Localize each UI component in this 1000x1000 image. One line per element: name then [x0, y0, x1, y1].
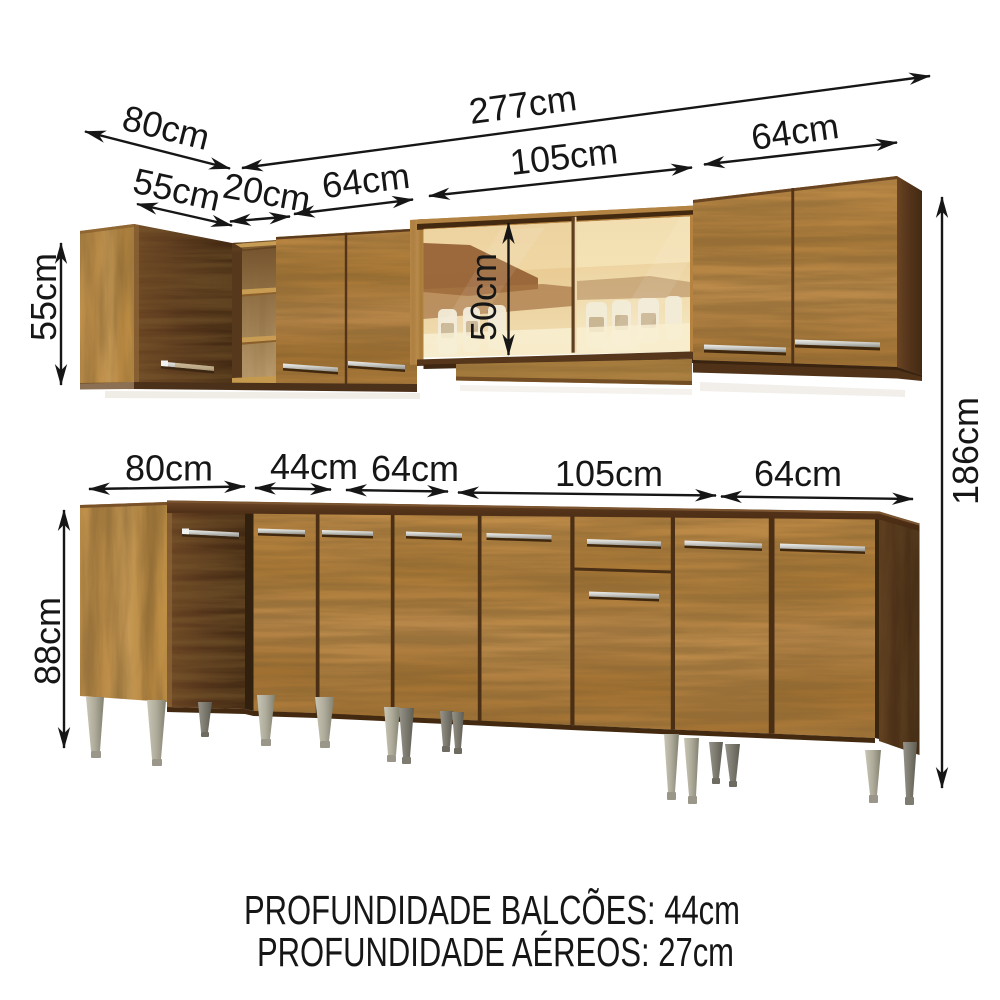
- svg-text:277cm: 277cm: [467, 77, 580, 132]
- svg-text:PROFUNDIDADE AÉREOS: 27cm: PROFUNDIDADE AÉREOS: 27cm: [257, 929, 734, 975]
- svg-text:88cm: 88cm: [27, 597, 68, 685]
- svg-text:PROFUNDIDADE BALCÕES: 44cm: PROFUNDIDADE BALCÕES: 44cm: [244, 887, 740, 933]
- svg-text:55cm: 55cm: [23, 253, 64, 341]
- svg-text:55cm: 55cm: [129, 160, 224, 219]
- svg-text:80cm: 80cm: [118, 97, 213, 158]
- svg-text:20cm: 20cm: [220, 165, 314, 221]
- svg-text:64cm: 64cm: [371, 448, 459, 489]
- svg-text:64cm: 64cm: [320, 155, 412, 206]
- svg-text:50cm: 50cm: [463, 253, 504, 341]
- svg-text:64cm: 64cm: [754, 453, 842, 494]
- svg-text:105cm: 105cm: [555, 453, 663, 494]
- svg-text:44cm: 44cm: [270, 446, 358, 487]
- svg-text:80cm: 80cm: [125, 448, 213, 489]
- svg-text:105cm: 105cm: [508, 130, 620, 183]
- svg-text:186cm: 186cm: [945, 397, 986, 505]
